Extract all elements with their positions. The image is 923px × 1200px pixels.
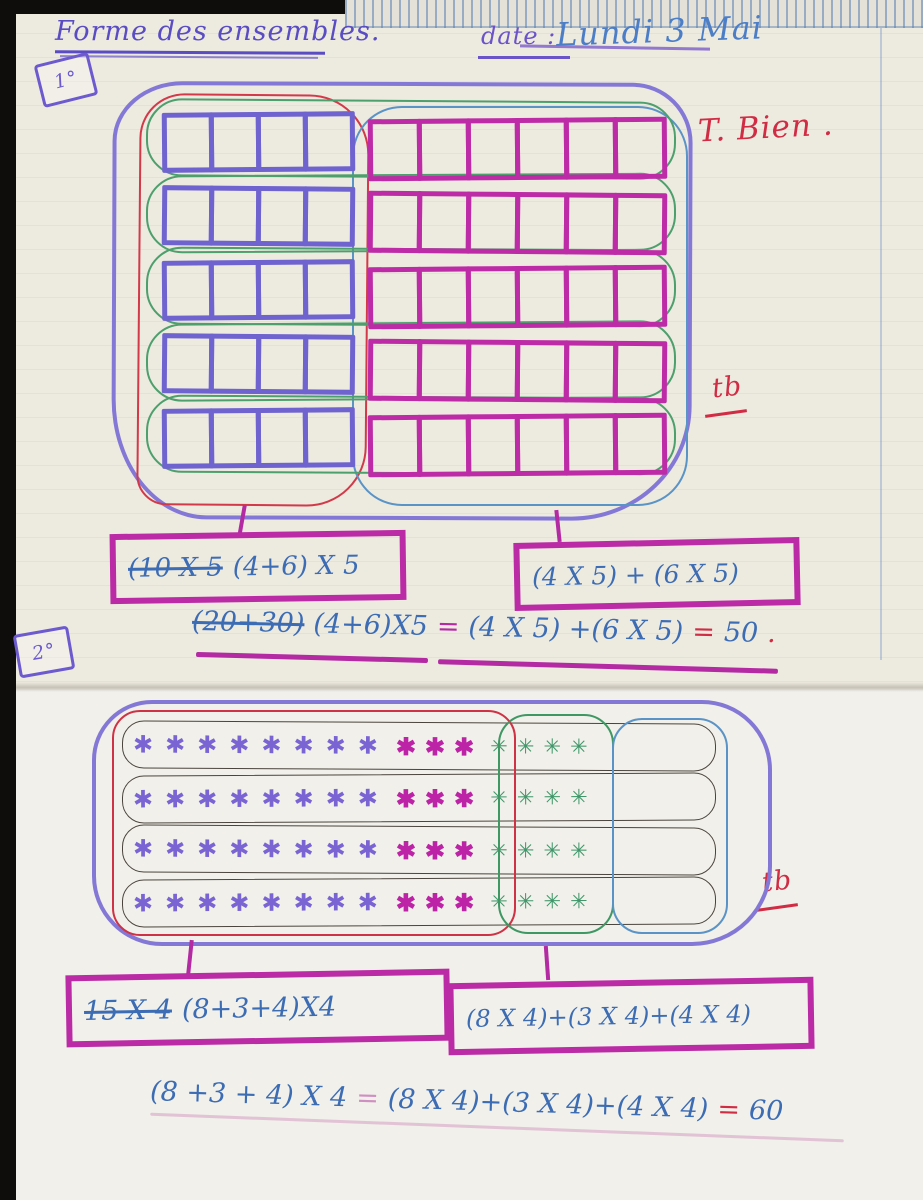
equals-sign: = bbox=[437, 611, 460, 642]
teacher-mark-tb-1: tb bbox=[710, 371, 743, 405]
grid-cell bbox=[209, 408, 262, 468]
grid-cell bbox=[515, 192, 570, 254]
grid-cell bbox=[613, 413, 668, 475]
red-loop-purple-stars bbox=[112, 710, 516, 936]
grid-cell bbox=[368, 119, 423, 181]
result: 50 bbox=[724, 617, 759, 649]
equals-sign: = bbox=[356, 1083, 380, 1115]
grid-cell bbox=[368, 191, 423, 253]
scan-edge-top bbox=[0, 0, 345, 14]
grid-strip bbox=[162, 111, 356, 173]
grid-cell bbox=[466, 340, 521, 402]
grid-strip bbox=[368, 191, 668, 256]
grid-cell bbox=[162, 260, 215, 320]
blue-loop-green-stars bbox=[612, 718, 728, 934]
grid-cell bbox=[209, 112, 262, 172]
grid-cell bbox=[417, 118, 472, 180]
label-box-f2-right: (8 X 4)+(3 X 4)+(4 X 4) bbox=[447, 977, 814, 1055]
period: . bbox=[767, 618, 776, 649]
expression: (8+3+4)X4 bbox=[182, 991, 337, 1025]
grid-cell bbox=[613, 265, 668, 327]
date-underline bbox=[478, 56, 570, 59]
grid-cell bbox=[368, 415, 423, 477]
grid-cell bbox=[303, 186, 356, 246]
grid-strip bbox=[162, 185, 356, 247]
grid-cell bbox=[256, 186, 309, 246]
page-title: Forme des ensembles. bbox=[55, 16, 380, 47]
grid-cell bbox=[162, 185, 215, 245]
expression: (4 X 5) + (6 X 5) bbox=[532, 558, 739, 591]
grid-cell bbox=[162, 408, 215, 468]
grid-cell bbox=[417, 191, 472, 253]
grid-cell bbox=[162, 112, 215, 172]
crossed-out-expression: 15 X 4 bbox=[84, 994, 172, 1027]
grid-cell bbox=[613, 193, 668, 255]
grid-strip bbox=[162, 333, 356, 395]
grid-cell bbox=[564, 265, 619, 327]
grid-cell bbox=[368, 339, 423, 401]
crossed-out-expression: (10 X 5 bbox=[128, 552, 223, 583]
notebook-scan: Forme des ensembles. date : Lundi 3 Mai … bbox=[0, 0, 923, 1200]
grid-strip bbox=[368, 413, 668, 478]
scan-edge-left bbox=[0, 0, 16, 1200]
lhs: (4+6)X5 bbox=[313, 608, 428, 641]
grid-cell bbox=[466, 118, 521, 180]
equals-sign: = bbox=[692, 616, 715, 647]
grid-cell bbox=[256, 260, 309, 320]
grid-cell bbox=[564, 413, 619, 475]
grid-cell bbox=[613, 341, 668, 403]
grid-cell bbox=[256, 334, 309, 394]
grid-cell bbox=[162, 333, 215, 393]
grid-group-magenta bbox=[368, 118, 667, 476]
expression: (8 X 4)+(3 X 4)+(4 X 4) bbox=[466, 1000, 751, 1033]
grid-cell bbox=[515, 340, 570, 402]
label-box-f2-left: 15 X 4 (8+3+4)X4 bbox=[65, 969, 450, 1048]
grid-strip bbox=[368, 265, 668, 330]
grid-strip bbox=[162, 259, 356, 321]
grid-cell bbox=[613, 117, 668, 179]
label-box-f1-right: (4 X 5) + (6 X 5) bbox=[513, 537, 800, 611]
grid-cell bbox=[515, 118, 570, 180]
grid-cell bbox=[515, 266, 570, 328]
equals-sign: = bbox=[717, 1094, 741, 1126]
grid-cell bbox=[303, 111, 356, 171]
grid-cell bbox=[466, 414, 521, 476]
grid-cell bbox=[466, 266, 521, 328]
margin-rule-line bbox=[880, 10, 882, 660]
teacher-mark-tres-bien: T. Bien . bbox=[697, 106, 834, 149]
crossed-out-term: (20+30) bbox=[192, 606, 305, 639]
grid-cell bbox=[564, 117, 619, 179]
grid-cell bbox=[466, 192, 521, 254]
lhs: (8 +3 + 4) X 4 bbox=[150, 1076, 348, 1113]
grid-cell bbox=[256, 112, 309, 172]
grid-cell bbox=[417, 339, 472, 401]
green-loop-magenta-stars bbox=[498, 714, 614, 934]
expression: (4+6) X 5 bbox=[233, 551, 360, 583]
grid-strip bbox=[368, 339, 668, 404]
grid-cell bbox=[303, 259, 356, 319]
grid-cell bbox=[303, 334, 356, 394]
grid-cell bbox=[209, 334, 262, 394]
result: 60 bbox=[748, 1095, 783, 1127]
grid-cell bbox=[209, 260, 262, 320]
grid-cell bbox=[564, 340, 619, 402]
rhs: (4 X 5) +(6 X 5) bbox=[468, 612, 683, 647]
grid-strip bbox=[368, 117, 668, 182]
grid-cell bbox=[209, 186, 262, 246]
grid-group-purple bbox=[162, 112, 355, 468]
label-box-f1-left: (10 X 5 (4+6) X 5 bbox=[110, 530, 407, 604]
grid-cell bbox=[256, 408, 309, 468]
grid-cell bbox=[303, 407, 356, 467]
grid-cell bbox=[417, 266, 472, 328]
grid-cell bbox=[417, 414, 472, 476]
page-fold-crease bbox=[0, 682, 923, 692]
grid-cell bbox=[368, 267, 423, 329]
grid-cell bbox=[564, 192, 619, 254]
grid-strip bbox=[162, 407, 356, 469]
grid-cell bbox=[515, 414, 570, 476]
